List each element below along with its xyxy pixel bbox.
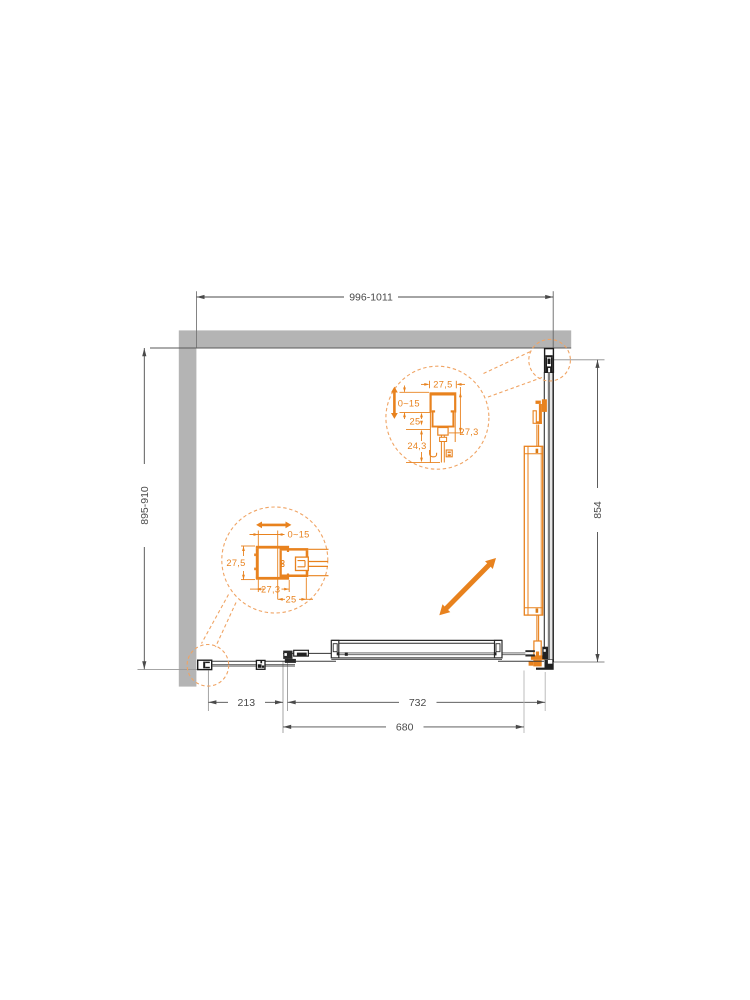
svg-text:895-910: 895-910 bbox=[139, 486, 151, 525]
svg-text:996-1011: 996-1011 bbox=[349, 292, 393, 304]
svg-text:732: 732 bbox=[409, 697, 427, 709]
svg-text:24,3: 24,3 bbox=[407, 441, 426, 451]
svg-text:27,3: 27,3 bbox=[261, 585, 280, 595]
svg-text:0~15: 0~15 bbox=[288, 530, 310, 540]
svg-text:680: 680 bbox=[396, 722, 414, 734]
svg-text:0~15: 0~15 bbox=[398, 398, 420, 408]
svg-text:25: 25 bbox=[286, 595, 297, 605]
svg-text:854: 854 bbox=[592, 501, 604, 519]
svg-text:25: 25 bbox=[410, 417, 421, 427]
svg-text:213: 213 bbox=[238, 697, 256, 709]
svg-text:27,3: 27,3 bbox=[459, 427, 478, 437]
svg-text:27,5: 27,5 bbox=[226, 558, 245, 568]
svg-text:27,5: 27,5 bbox=[433, 379, 452, 389]
